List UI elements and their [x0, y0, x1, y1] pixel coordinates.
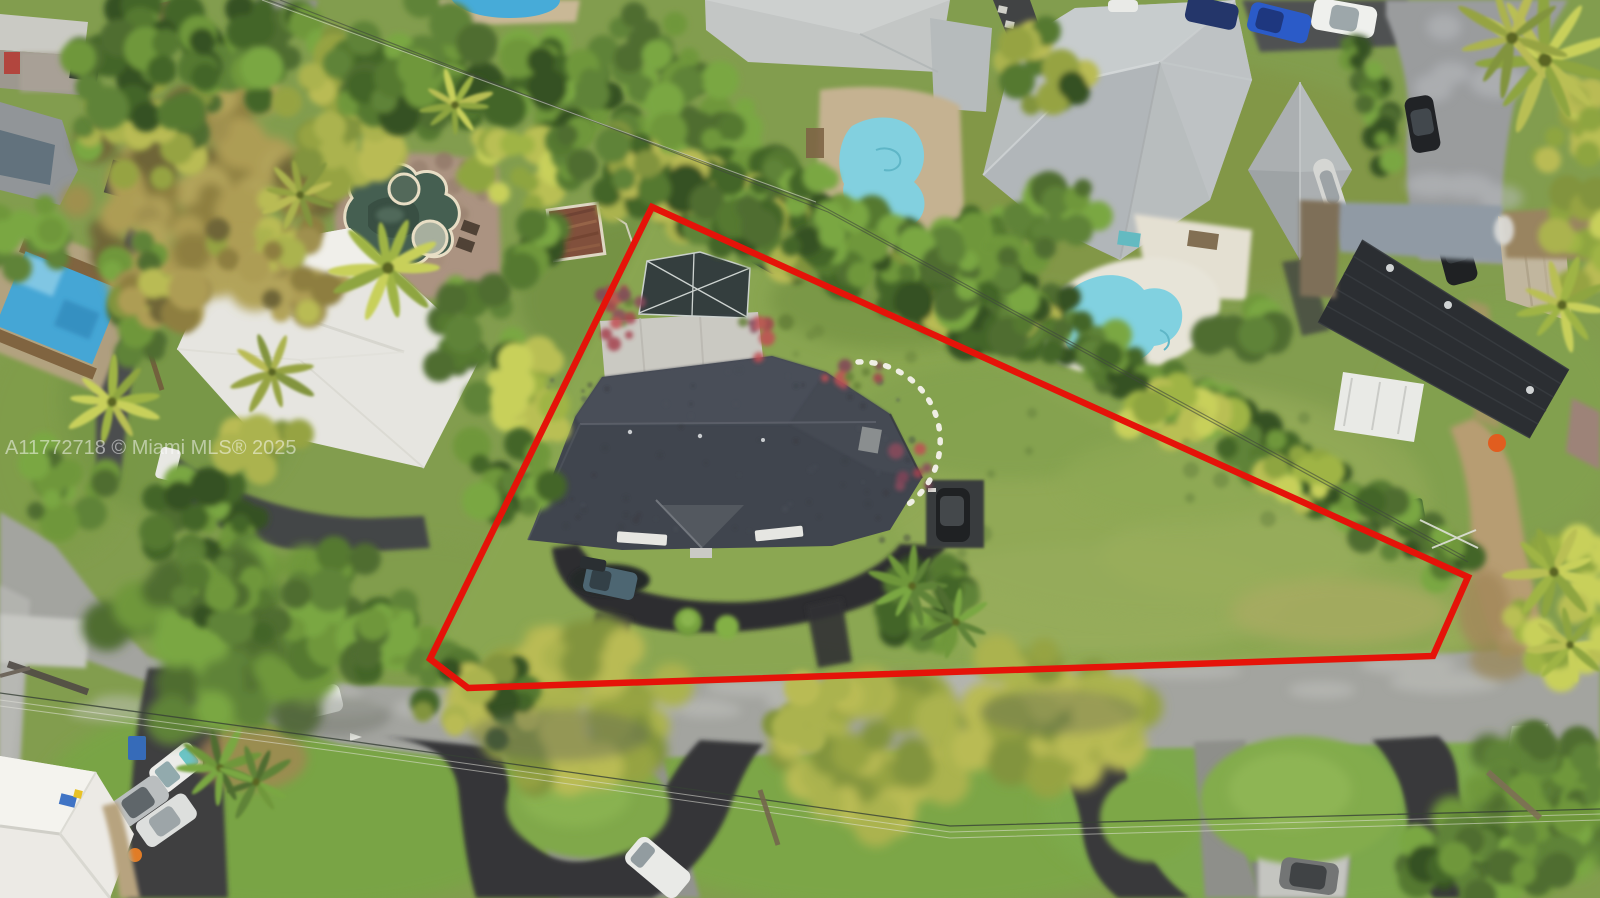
svg-text:A11772718 © Miami MLS® 2025: A11772718 © Miami MLS® 2025	[5, 437, 296, 459]
